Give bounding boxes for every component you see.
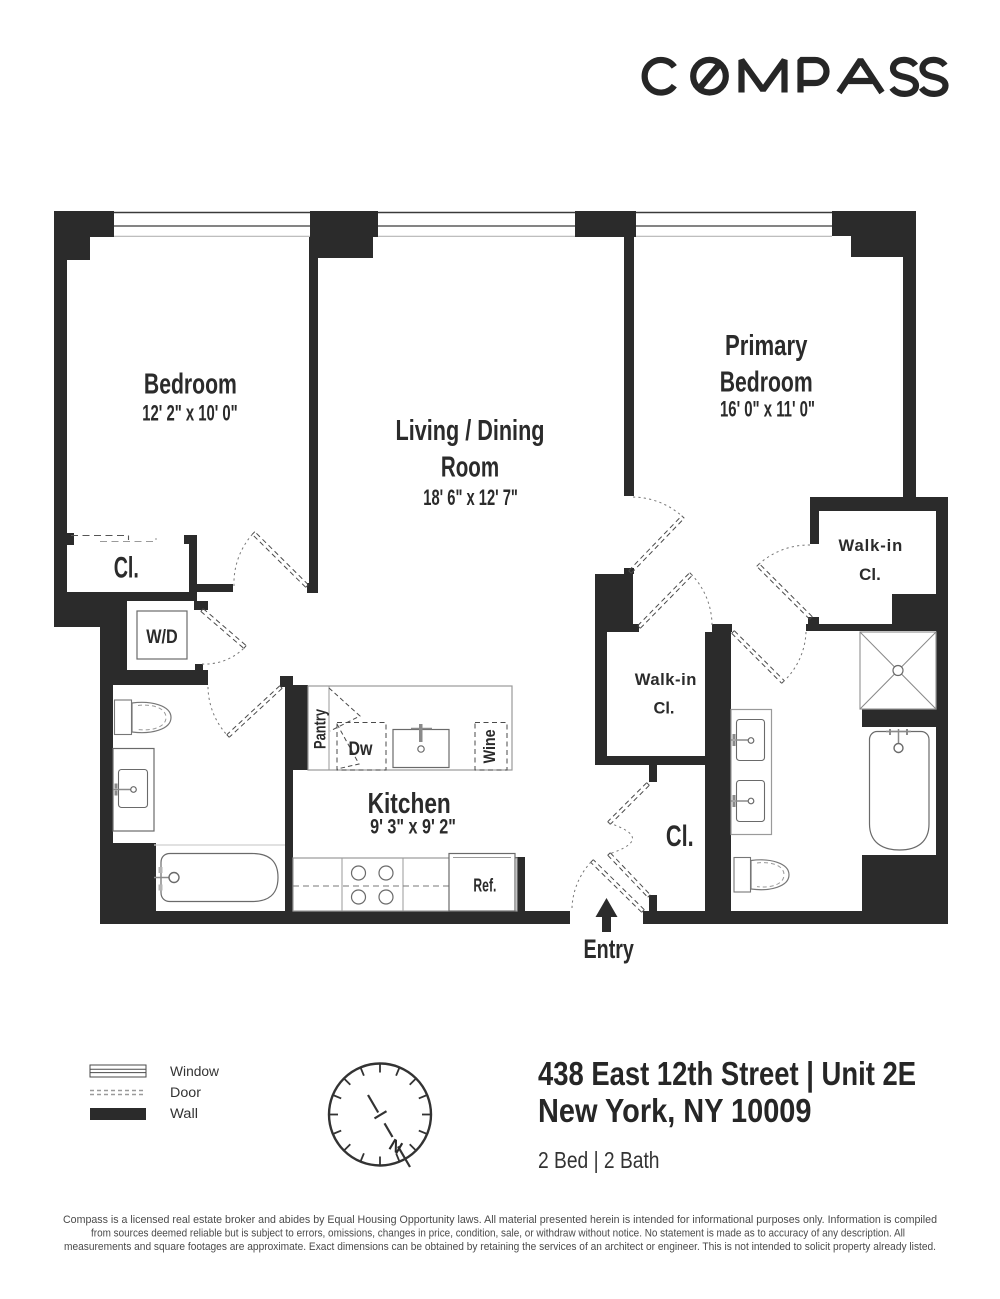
- svg-text:Dw: Dw: [349, 739, 373, 760]
- svg-text:Room: Room: [441, 451, 499, 483]
- svg-text:Walk-in: Walk-in: [839, 536, 903, 555]
- svg-text:from sources deemed reliable b: from sources deemed reliable but is subj…: [91, 1228, 905, 1240]
- svg-text:Cl.: Cl.: [654, 699, 675, 718]
- svg-text:Ref.: Ref.: [473, 874, 496, 895]
- svg-text:12' 2" x 10' 0": 12' 2" x 10' 0": [142, 400, 237, 425]
- svg-text:18' 6" x 12' 7": 18' 6" x 12' 7": [423, 485, 518, 510]
- svg-text:Door: Door: [170, 1085, 202, 1100]
- svg-text:Primary: Primary: [725, 330, 808, 362]
- svg-text:Cl.: Cl.: [859, 565, 881, 584]
- svg-text:Bedroom: Bedroom: [144, 369, 237, 401]
- svg-text:16' 0" x 11' 0": 16' 0" x 11' 0": [720, 397, 815, 422]
- svg-text:Wine: Wine: [481, 729, 499, 763]
- svg-text:Pantry: Pantry: [312, 708, 330, 749]
- svg-text:measurements and square footag: measurements and square footages are app…: [64, 1241, 936, 1253]
- svg-text:Compass is a licensed real est: Compass is a licensed real estate broker…: [63, 1214, 937, 1226]
- svg-text:W/D: W/D: [146, 627, 178, 648]
- svg-text:Cl.: Cl.: [666, 820, 694, 853]
- svg-text:438 East 12th Street | Unit 2E: 438 East 12th Street | Unit 2E: [538, 1056, 916, 1093]
- svg-text:9' 3" x 9' 2": 9' 3" x 9' 2": [370, 814, 456, 838]
- svg-text:Entry: Entry: [584, 934, 635, 964]
- svg-text:Cl.: Cl.: [114, 552, 139, 585]
- svg-text:Bedroom: Bedroom: [720, 367, 813, 399]
- svg-text:Walk-in: Walk-in: [635, 670, 697, 689]
- svg-text:Living / Dining: Living / Dining: [396, 415, 545, 447]
- svg-text:2 Bed | 2 Bath: 2 Bed | 2 Bath: [538, 1147, 660, 1173]
- svg-text:Wall: Wall: [170, 1106, 198, 1121]
- svg-text:Window: Window: [170, 1064, 219, 1079]
- svg-text:New York, NY 10009: New York, NY 10009: [538, 1093, 812, 1130]
